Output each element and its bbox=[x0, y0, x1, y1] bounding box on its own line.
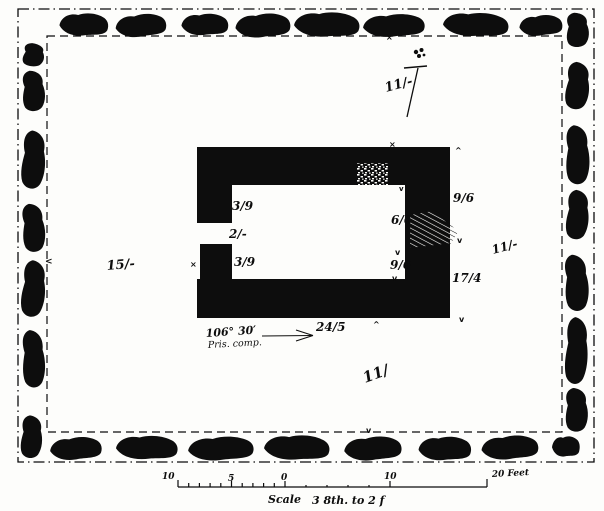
wall-south bbox=[197, 279, 450, 318]
measurement-left-area: 15/- bbox=[106, 257, 135, 274]
survey-plan-page: 11/- 106° 30′ Pris. comp. 15/- 11/- 11/ … bbox=[0, 0, 604, 511]
stone bbox=[481, 435, 539, 461]
stone bbox=[565, 125, 590, 185]
inner-boundary-dashed-line bbox=[47, 36, 562, 432]
tick-caret-up: ^ bbox=[455, 146, 462, 155]
stone bbox=[566, 12, 590, 48]
stone bbox=[443, 11, 510, 38]
measurement-lower-area: 11/ bbox=[360, 360, 392, 386]
scale-caption-ratio: 3 8th. to 2 f bbox=[312, 494, 387, 507]
north-arrow-finial-icon bbox=[414, 48, 426, 58]
survey-tick-marks: × × ^ v v v v v ^ × < v bbox=[45, 33, 465, 435]
tick-caret-down: v bbox=[457, 236, 463, 245]
tick-caret-down: v bbox=[459, 315, 465, 324]
tick-cross: × bbox=[190, 260, 197, 269]
tick-less-than: < bbox=[45, 257, 53, 267]
measurement-bottom-wall: 24/5 bbox=[315, 320, 345, 334]
stone bbox=[565, 388, 589, 432]
stone bbox=[21, 70, 46, 112]
tick-caret-down: v bbox=[395, 248, 401, 257]
wall-west-upper bbox=[197, 185, 232, 223]
stone bbox=[363, 14, 425, 38]
rubble-texture-patch bbox=[357, 163, 388, 186]
stone bbox=[115, 13, 167, 38]
scale-end-label: 20 Feet bbox=[491, 468, 530, 480]
stone bbox=[264, 434, 330, 461]
stone bbox=[294, 11, 360, 38]
tick-caret-down: v bbox=[366, 426, 372, 435]
tick-cross: × bbox=[389, 140, 396, 149]
stone bbox=[188, 436, 254, 461]
stone bbox=[565, 189, 590, 239]
stone bbox=[50, 436, 102, 460]
stone bbox=[21, 329, 46, 388]
stone bbox=[116, 435, 178, 461]
scale-label-right-10: 10 bbox=[384, 472, 397, 482]
stone bbox=[20, 260, 47, 318]
stone bbox=[235, 13, 291, 39]
measurement-outer-right-lower: 17/4 bbox=[452, 271, 481, 285]
scale-label-5: 5 bbox=[228, 474, 234, 484]
measurement-entrance: 2/- bbox=[228, 227, 247, 241]
north-line-measurement: 11/- bbox=[383, 74, 414, 96]
measurement-outer-right-upper: 9/6 bbox=[453, 191, 475, 205]
measurement-inner-right-upper: 6/6 bbox=[391, 213, 413, 227]
stone bbox=[181, 13, 228, 35]
stone bbox=[563, 254, 590, 312]
stone bbox=[59, 12, 108, 36]
north-arrow-crossbar bbox=[404, 66, 427, 68]
stone bbox=[22, 42, 45, 67]
stone bbox=[564, 61, 591, 110]
tick-caret-down: v bbox=[392, 274, 398, 283]
measurement-inner-left-upper: 3/9 bbox=[232, 199, 254, 213]
measurement-inner-left-lower: 3/9 bbox=[234, 255, 256, 269]
measurement-right-area: 11/- bbox=[490, 237, 519, 257]
tick-caret-down: v bbox=[399, 185, 404, 193]
stone bbox=[552, 435, 581, 457]
scale-label-0: 0 bbox=[281, 473, 288, 483]
measurement-inner-right-lower: 9/6 bbox=[390, 258, 412, 272]
tick-caret-up: ^ bbox=[373, 320, 380, 329]
bearing-arrow-icon bbox=[262, 330, 313, 341]
stone bbox=[20, 130, 46, 189]
boundary-stones bbox=[20, 11, 591, 461]
stone bbox=[344, 436, 402, 462]
wall-north bbox=[197, 147, 450, 185]
bearing-method-label: Pris. comp. bbox=[207, 337, 263, 351]
scale-bar bbox=[178, 479, 487, 487]
plan-drawing: 11/- 106° 30′ Pris. comp. 15/- 11/- 11/ … bbox=[0, 0, 604, 511]
wall-west-lower bbox=[200, 244, 232, 279]
stone bbox=[20, 203, 46, 253]
tick-cross: × bbox=[386, 33, 393, 42]
scale-caption-word: Scale bbox=[268, 493, 301, 506]
scale-label-left-10: 10 bbox=[162, 472, 175, 482]
stone bbox=[418, 436, 471, 461]
outer-boundary-dashdot-line bbox=[18, 9, 594, 462]
stone bbox=[564, 317, 589, 385]
stone bbox=[519, 14, 563, 36]
stone bbox=[20, 415, 43, 458]
